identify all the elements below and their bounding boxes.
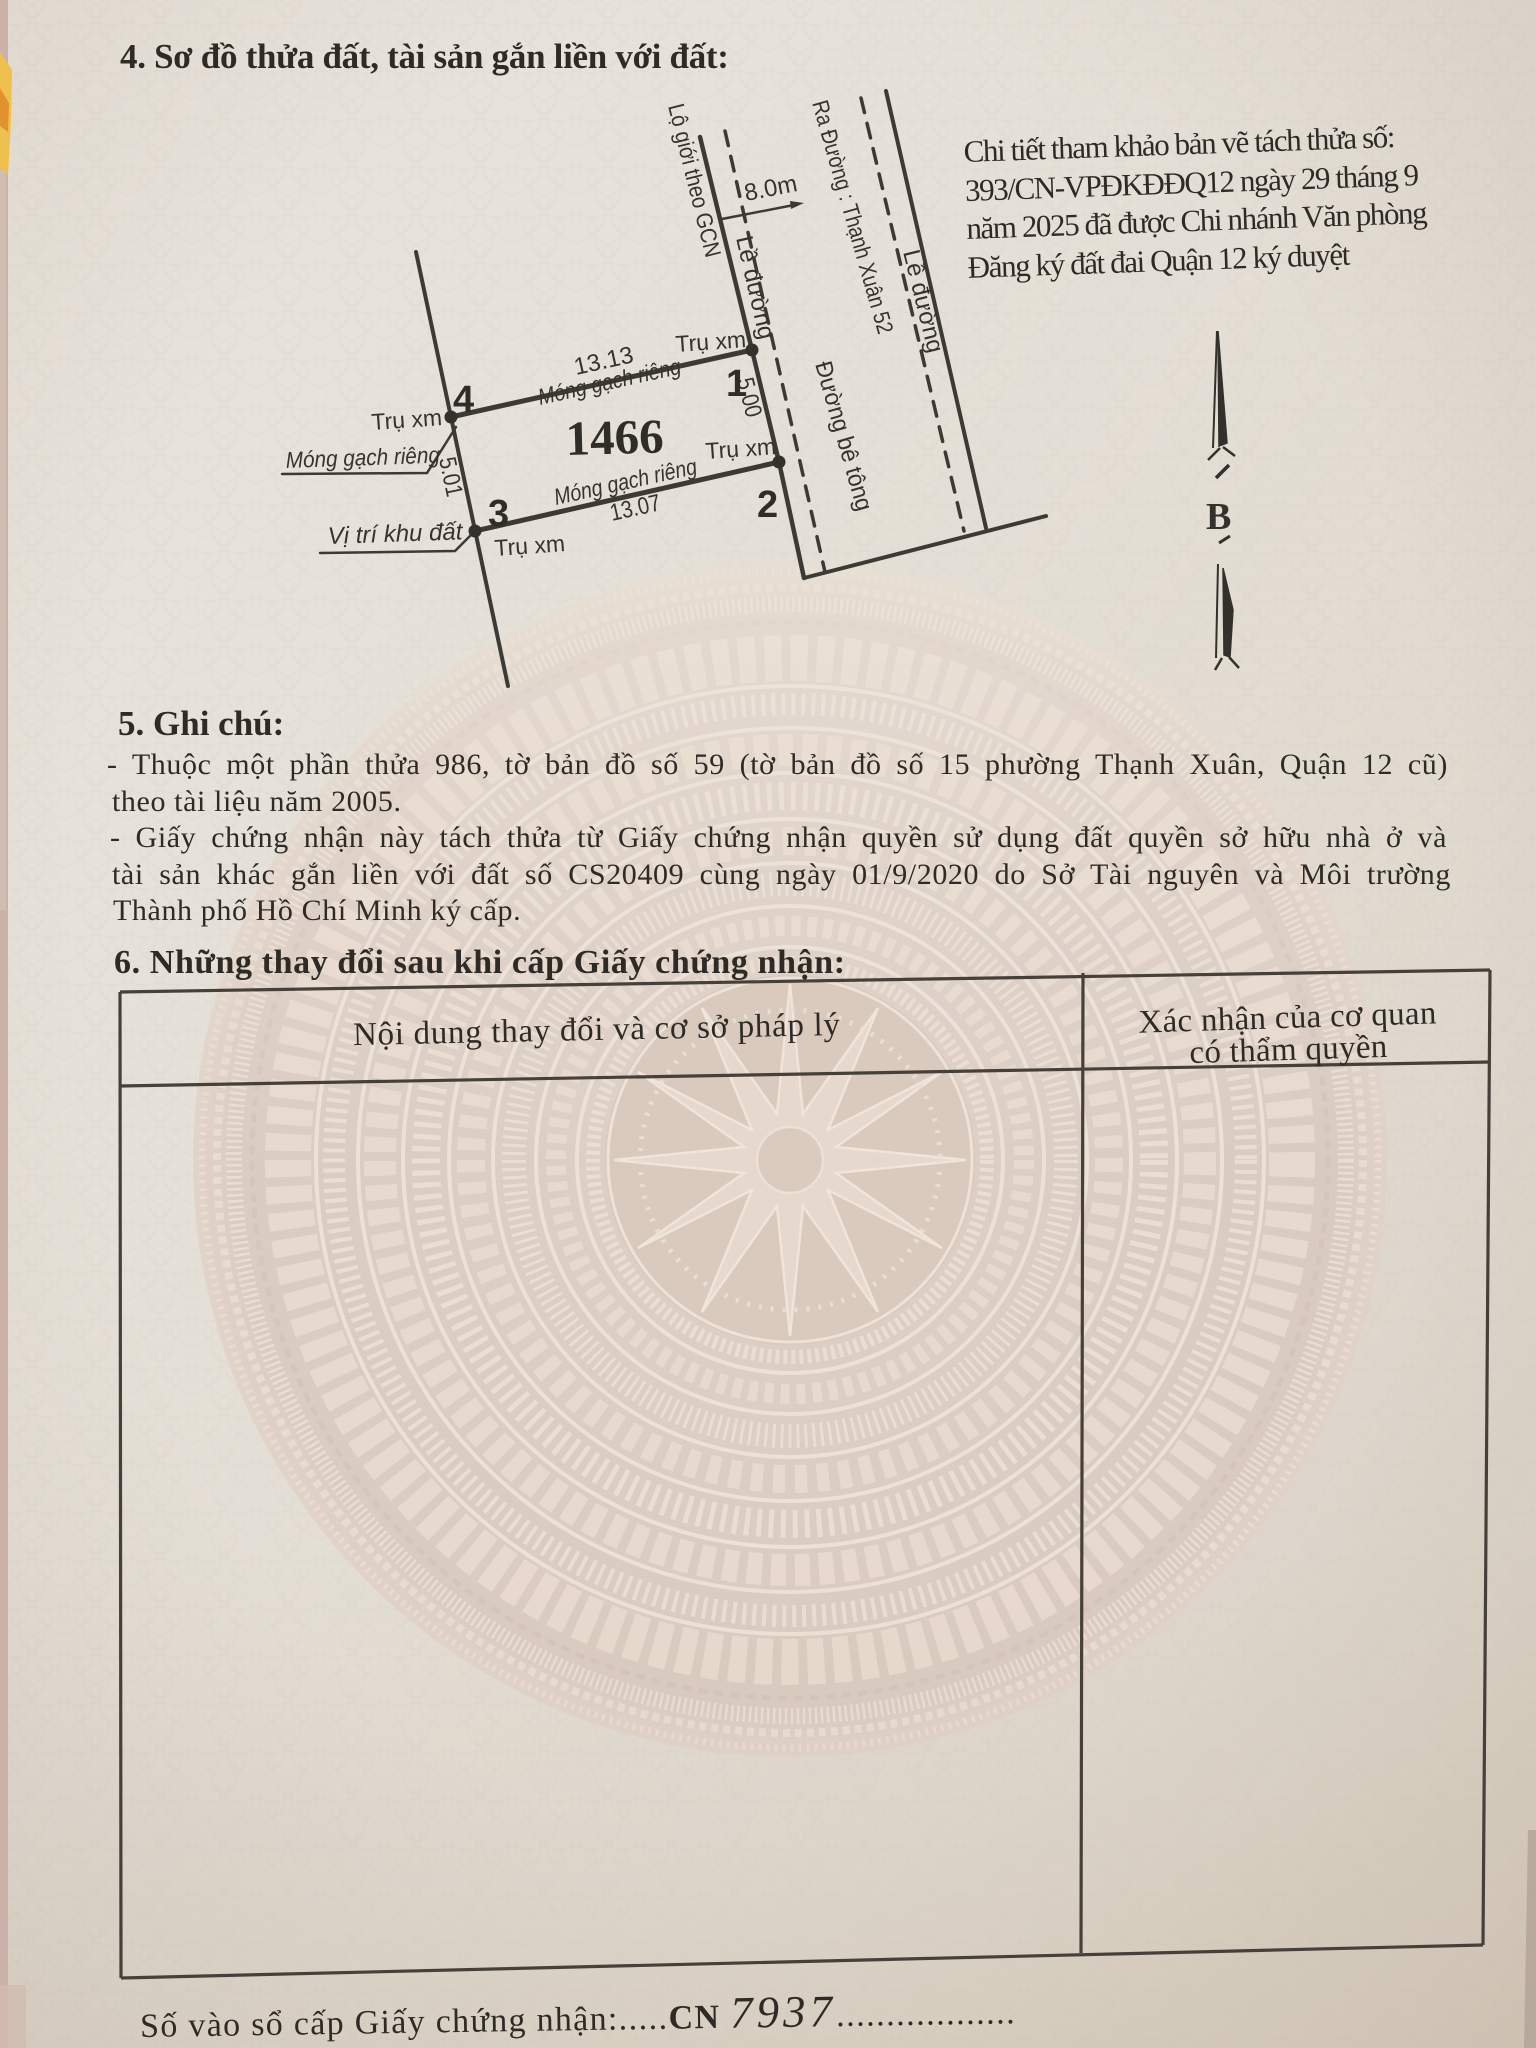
svg-text:Móng gạch riêng: Móng gạch riêng xyxy=(285,442,440,474)
svg-text:Trụ xm: Trụ xm xyxy=(705,433,777,464)
svg-text:1: 1 xyxy=(726,363,747,405)
svg-text:Trụ xm: Trụ xm xyxy=(675,326,747,357)
svg-text:Vị trí khu đất: Vị trí khu đất xyxy=(327,518,464,550)
svg-text:2: 2 xyxy=(757,484,778,526)
svg-text:Trụ xm: Trụ xm xyxy=(371,404,443,435)
svg-text:B: B xyxy=(1206,496,1231,538)
svg-text:4: 4 xyxy=(453,379,474,421)
svg-text:1466: 1466 xyxy=(565,408,664,466)
svg-text:3: 3 xyxy=(488,493,509,535)
